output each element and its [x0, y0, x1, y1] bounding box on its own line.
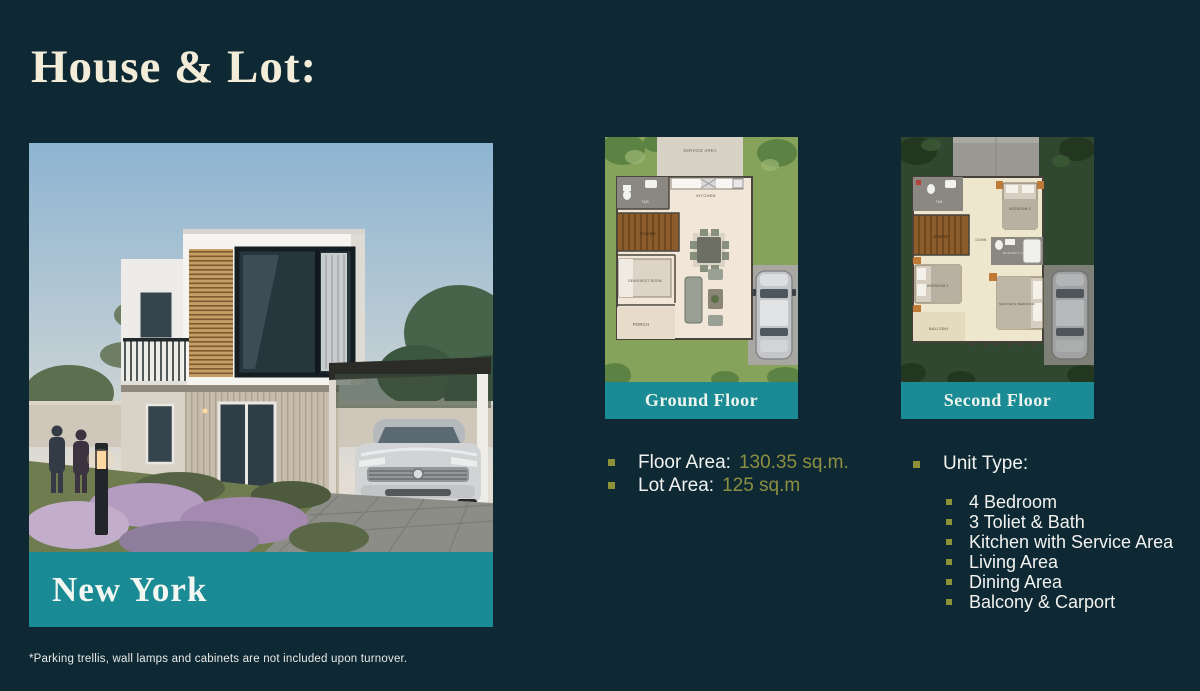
room-label-balcony: BALCONY — [929, 327, 949, 331]
floor-area-label: Floor Area: — [638, 452, 731, 474]
room-label-tb: T&B — [935, 200, 943, 204]
room-label-tb: T&B — [641, 200, 649, 204]
lot-area-value: 125 sq.m — [722, 475, 800, 497]
unit-type-section: Unit Type: 4 Bedroom 3 Toliet & Bath Kit… — [913, 453, 1173, 612]
list-item: Balcony & Carport — [946, 592, 1173, 612]
unit-type-item-label: Balcony & Carport — [969, 592, 1115, 613]
room-label-stairs: STAIRS — [934, 235, 949, 239]
house-card: New York — [29, 143, 493, 627]
room-label-masters-tb: MASTER'S T&B — [1003, 251, 1028, 255]
ground-floor-card: SERVICE AREA T&B STAIRS KITCHEN DEN/GUES… — [605, 137, 798, 419]
list-item: 3 Toliet & Bath — [946, 512, 1173, 532]
bullet-square-icon — [946, 559, 952, 565]
bullet-square-icon — [946, 579, 952, 585]
unit-type-header: Unit Type: — [913, 453, 1173, 475]
bullet-square-icon — [608, 459, 615, 466]
second-floor-card: T&B STAIRS DOWN BEDROOM 3 MASTER'S T&B B… — [901, 137, 1094, 419]
page-title: House & Lot: — [31, 40, 317, 94]
second-floor-label: Second Floor — [901, 382, 1094, 419]
bullet-square-icon — [913, 461, 920, 468]
unit-type-label: Unit Type: — [943, 453, 1028, 475]
floor-area-value: 130.35 sq.m. — [739, 452, 849, 474]
room-label-porch: PORCH — [633, 322, 649, 327]
slide: House & Lot: — [0, 0, 1200, 691]
list-item: Kitchen with Service Area — [946, 532, 1173, 552]
specs-list: Floor Area: 130.35 sq.m. Lot Area: 125 s… — [608, 451, 849, 497]
unit-type-item-label: Dining Area — [969, 572, 1062, 593]
unit-type-list: 4 Bedroom 3 Toliet & Bath Kitchen with S… — [946, 492, 1173, 612]
bullet-square-icon — [946, 499, 952, 505]
room-label-den-guest: DEN/GUEST ROOM — [628, 279, 662, 283]
floor-area-row: Floor Area: 130.35 sq.m. — [608, 451, 849, 474]
house-photo-illustration — [29, 143, 493, 552]
unit-type-item-label: 3 Toliet & Bath — [969, 512, 1085, 533]
bullet-square-icon — [608, 482, 615, 489]
list-item: 4 Bedroom — [946, 492, 1173, 512]
list-item: Living Area — [946, 552, 1173, 572]
ground-floor-plan: SERVICE AREA T&B STAIRS KITCHEN DEN/GUES… — [605, 137, 798, 382]
bullet-square-icon — [946, 519, 952, 525]
bullet-square-icon — [946, 539, 952, 545]
room-label-stairs: STAIRS — [640, 231, 656, 236]
room-label-bedroom-2: BEDROOM 2 — [927, 284, 948, 288]
lot-area-row: Lot Area: 125 sq.m — [608, 474, 849, 497]
unit-type-item-label: Living Area — [969, 552, 1058, 573]
unit-type-item-label: 4 Bedroom — [969, 492, 1057, 513]
room-label-down: DOWN — [975, 238, 987, 242]
room-label-service-area: SERVICE AREA — [683, 148, 717, 153]
list-item: Dining Area — [946, 572, 1173, 592]
unit-type-item-label: Kitchen with Service Area — [969, 532, 1173, 553]
room-label-masters-bedroom: MASTER'S BEDROOM — [999, 302, 1035, 306]
room-label-kitchen: KITCHEN — [696, 193, 715, 198]
ground-floor-label: Ground Floor — [605, 382, 798, 419]
bullet-square-icon — [946, 599, 952, 605]
lot-area-label: Lot Area: — [638, 475, 714, 497]
house-name: New York — [52, 570, 207, 610]
house-name-banner: New York — [29, 552, 493, 627]
room-label-bedroom-3: BEDROOM 3 — [1009, 207, 1030, 211]
second-floor-plan: T&B STAIRS DOWN BEDROOM 3 MASTER'S T&B B… — [901, 137, 1094, 382]
footnote: *Parking trellis, wall lamps and cabinet… — [29, 653, 407, 665]
